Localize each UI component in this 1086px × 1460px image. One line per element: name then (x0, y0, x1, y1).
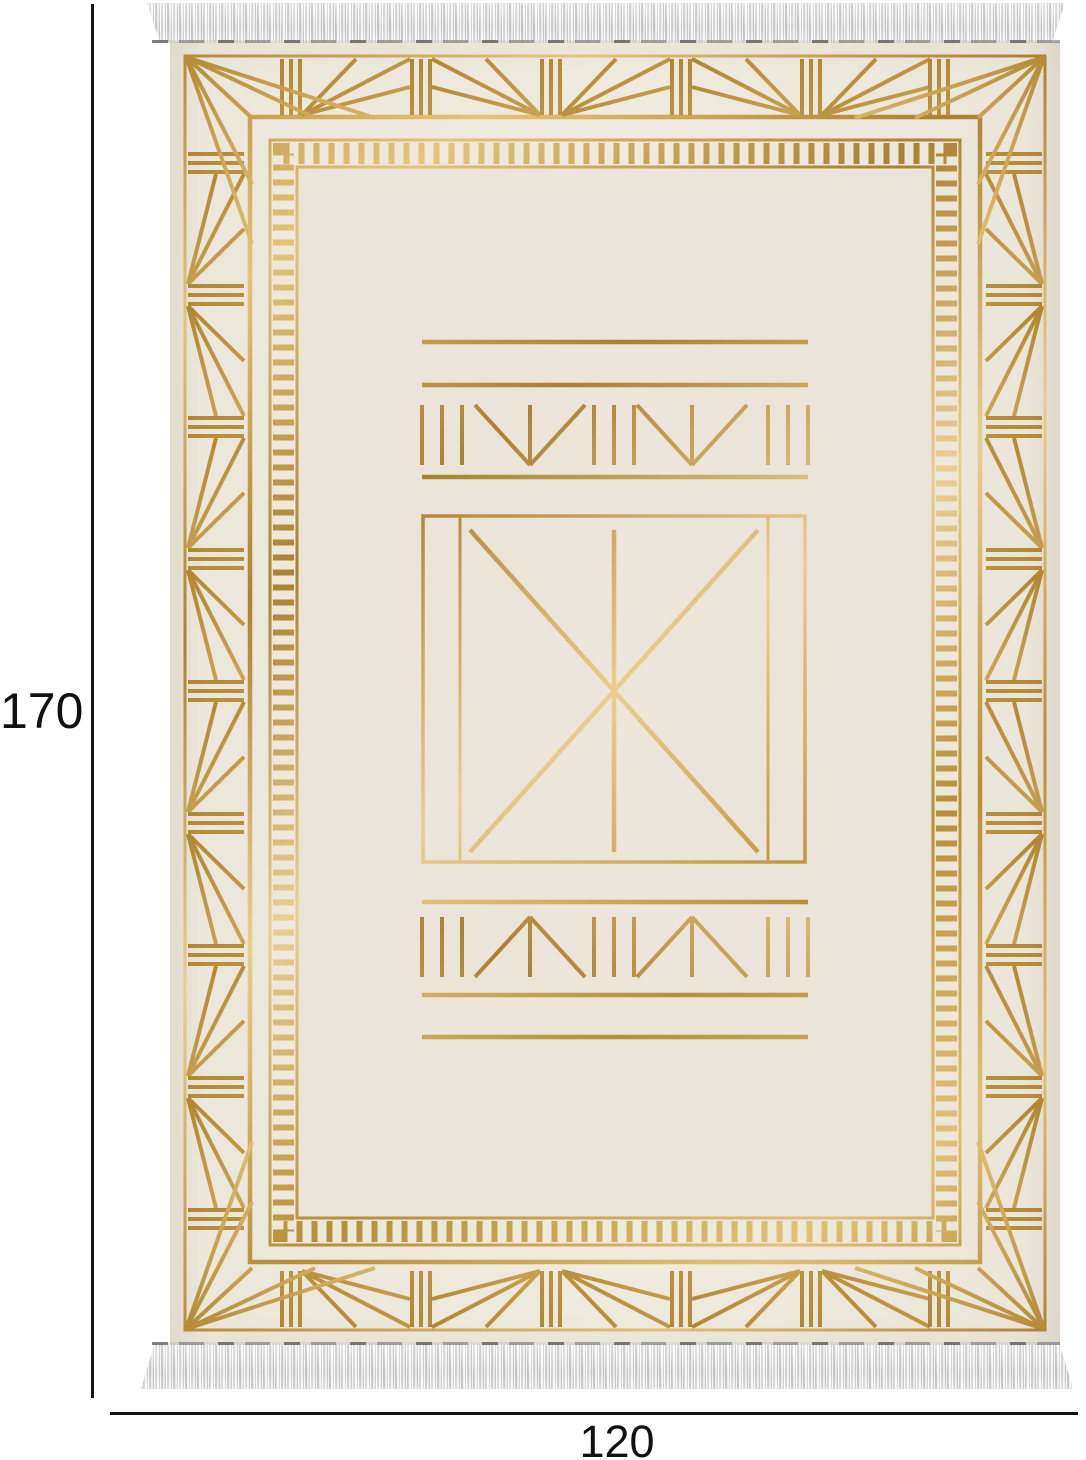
width-dimension-label: 120 (556, 1419, 678, 1460)
rug-pattern (170, 42, 1060, 1345)
width-dimension-line (110, 1412, 1078, 1415)
rug-bottom-fringe (141, 1345, 1073, 1389)
product-dimension-diagram: 170 120 (0, 0, 1086, 1460)
height-dimension-line (91, 4, 94, 1398)
rug-top-edge (152, 40, 1060, 43)
rug-bottom-edge (152, 1342, 1060, 1345)
rug-top-fringe (147, 3, 1065, 42)
rug (170, 42, 1060, 1345)
height-dimension-label: 170 (0, 686, 74, 736)
